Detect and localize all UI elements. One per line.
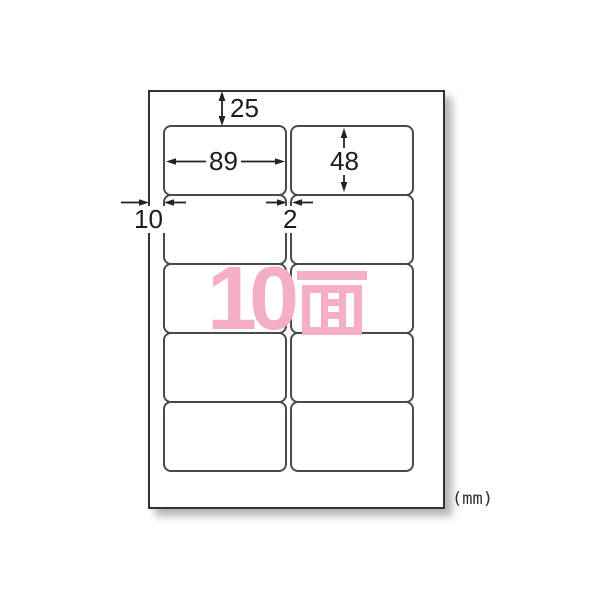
label-cell (290, 401, 414, 472)
top-margin-arrow-icon (216, 91, 228, 126)
column-gap-value: 2 (280, 206, 300, 233)
left-margin-value: 10 (131, 206, 166, 233)
left-margin-inner-arrow-icon (164, 197, 186, 208)
label-height-value: 48 (327, 148, 362, 175)
label-sheet-diagram: 25 89 48 10 2 10 (0, 0, 600, 600)
unit-label: (mm) (452, 489, 493, 509)
top-margin-value: 25 (230, 95, 259, 122)
label-width-value: 89 (206, 148, 241, 175)
label-cell (290, 332, 414, 403)
face-count-overlay: 10 (207, 266, 367, 332)
label-cell (163, 401, 287, 472)
men-kanji-glyph (297, 269, 367, 335)
face-count-number: 10 (207, 266, 297, 332)
